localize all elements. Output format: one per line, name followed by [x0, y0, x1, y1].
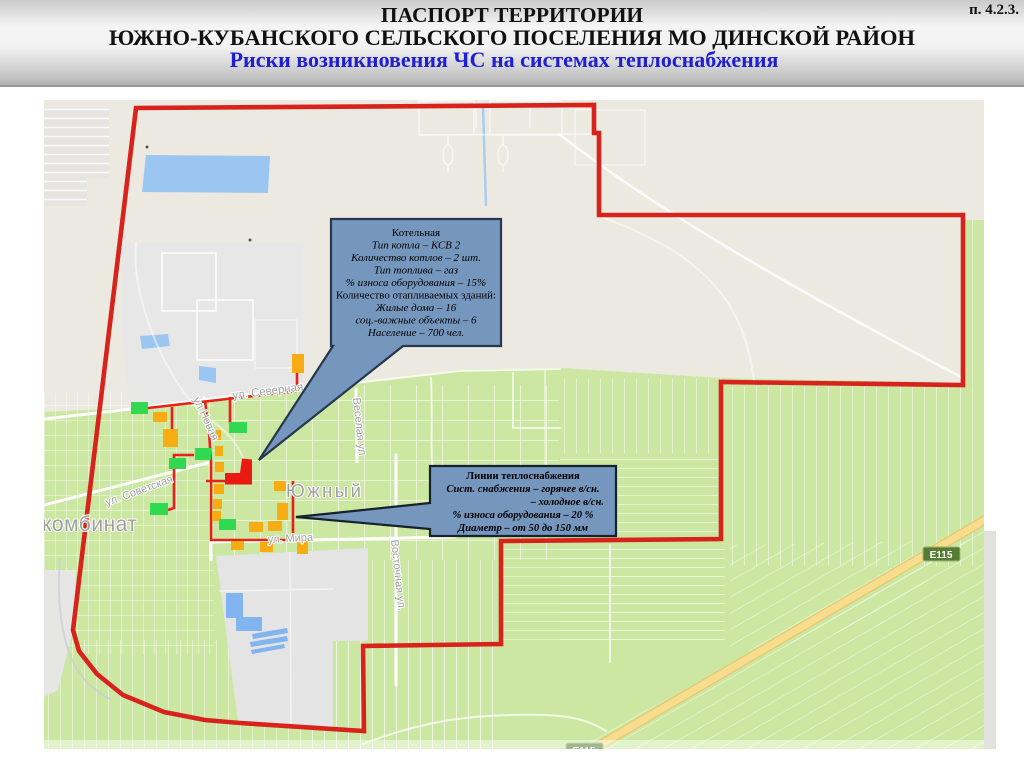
svg-text:соц.-важные объекты – 6: соц.-важные объекты – 6 [355, 315, 477, 327]
svg-text:Количество котлов – 2 шт.: Количество котлов – 2 шт. [350, 252, 481, 264]
svg-text:E115: E115 [930, 550, 953, 561]
svg-text:Южный: Южный [286, 480, 363, 501]
svg-text:ул. Мира: ул. Мира [268, 532, 315, 546]
svg-text:Диаметр – от 50 до 150 мм: Диаметр – от 50 до 150 мм [457, 523, 588, 534]
svg-text:– холодное в/сн.: – холодное в/сн. [530, 497, 604, 508]
svg-text:Количество отапливаемых зданий: Количество отапливаемых зданий: [336, 290, 496, 302]
svg-text:% износа оборудования – 20 %: % износа оборудования – 20 % [452, 510, 593, 521]
svg-text:% износа оборудования – 15%: % износа оборудования – 15% [346, 277, 486, 289]
svg-text:Тип топлива – газ: Тип топлива – газ [374, 265, 458, 277]
svg-text:Котельная: Котельная [392, 227, 440, 239]
svg-text:Линии теплоснабжения: Линии теплоснабжения [466, 471, 580, 482]
svg-text:Тип котла – КСВ 2: Тип котла – КСВ 2 [372, 240, 461, 252]
svg-text:Жилые дома – 16: Жилые дома – 16 [375, 302, 457, 314]
svg-text:Население – 700 чел.: Население – 700 чел. [367, 327, 464, 339]
svg-text:Сист. снабжения – горячее в/сн: Сист. снабжения – горячее в/сн. [446, 484, 599, 495]
svg-text:комбинат: комбинат [42, 513, 138, 536]
